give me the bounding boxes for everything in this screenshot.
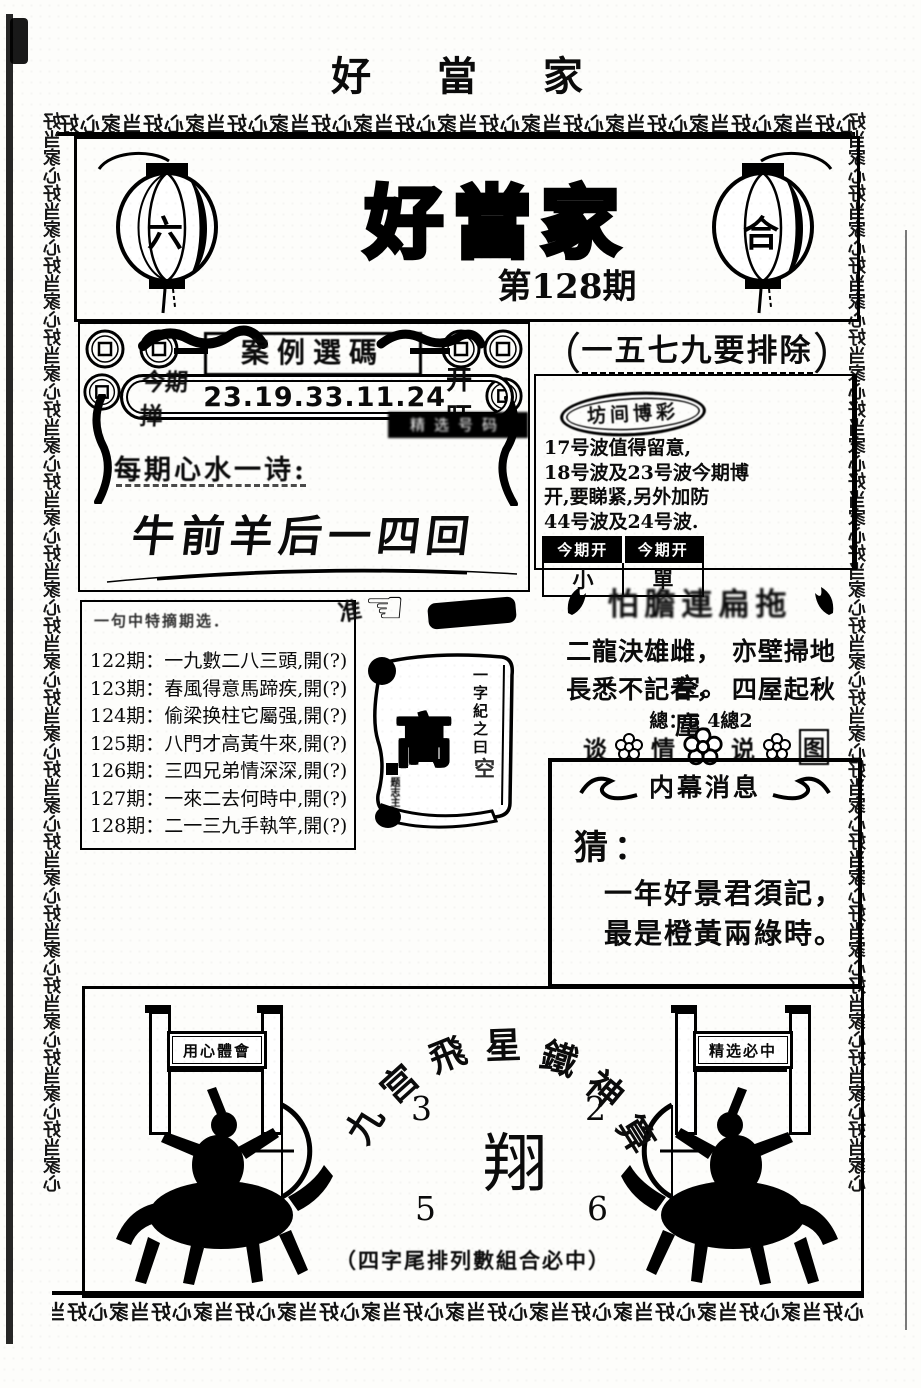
ribbon-curl-icon: [769, 769, 831, 803]
bottom-box: 用心體會 精选必中: [82, 986, 864, 1298]
open-table-header: 今期开: [623, 537, 703, 562]
arc-char: 星: [480, 1016, 526, 1062]
black-tag: 精选号码: [388, 412, 528, 438]
page-title: 好 當 家: [250, 44, 690, 102]
pill-label: 今期掸: [139, 363, 206, 431]
gate-banner-rule: [693, 1069, 787, 1072]
scanned-lottery-sheet: 好 當 家 心好当家心好当家心好当家心好当家心好当家心好当家心好当家心好当家心好…: [0, 0, 921, 1388]
issue-number: 第128期: [457, 259, 677, 308]
exclude-title: 一五七九要排除: [582, 325, 813, 375]
scan-edge-right: [905, 230, 907, 1330]
exclude-box: 坊间博彩 17号波值得留意, 18号波及23号波今期博 开,要睇紧,另外加防 4…: [534, 374, 857, 570]
oval-label: 坊间博彩: [559, 388, 707, 440]
history-item: 125期：八門才高黃牛來,開(?): [90, 731, 347, 759]
insider-box: 内幕消息 猜： 一年好景君須記， 最是橙黃兩綠時。: [548, 758, 862, 988]
history-title: 一句中特摘期选．: [94, 610, 230, 631]
guess-label: 猜：: [574, 820, 654, 869]
case-section: 案例選碼 今期掸 23.19.33.11.24 开旺 精选号码 每期心水一诗: …: [78, 322, 530, 592]
gate-banner-rule: [167, 1069, 261, 1072]
bracket-left: （: [538, 318, 582, 382]
scroll-graphic: 一字紀之曰 高 空 题志主: [352, 645, 534, 835]
scroll-big-char: 高: [396, 697, 452, 778]
arc-char: 飛: [416, 1020, 473, 1077]
num-top-right: 2: [585, 1089, 606, 1128]
arc-char: 鐵: [533, 1025, 588, 1080]
leaf-icon: [564, 583, 598, 619]
num-bottom-right: 6: [587, 1189, 608, 1228]
seal-text: 题志主: [386, 777, 401, 807]
insider-ribbon: 内幕消息: [552, 768, 858, 804]
case-poem: 牛前羊后一四回: [90, 502, 518, 564]
case-title: 案例選碼: [204, 332, 422, 376]
history-item: 122期：一九數二八三頭,開(?): [90, 648, 347, 676]
accuracy-char: 准: [335, 590, 364, 627]
insider-title: 内幕消息: [649, 768, 761, 804]
pill-numbers: 23.19.33.11.24: [203, 382, 446, 413]
seal-square: [386, 763, 398, 775]
lantern-left-char: 六: [147, 205, 183, 257]
open-table-header: 今期开: [543, 537, 623, 562]
num-bottom-left: 5: [415, 1189, 436, 1228]
ribbon-curl-icon: [579, 769, 641, 803]
lantern-right-char: 合: [743, 205, 779, 257]
tip-line: 17号波值得留意,: [544, 436, 749, 461]
tips-banner-text: 怕膽連扁拖: [608, 579, 793, 624]
ribbon-tail-icon: [88, 394, 114, 504]
scroll-vertical-phrase: 一字紀之曰: [470, 667, 491, 757]
poem-label-underline: [116, 484, 306, 487]
num-top-left: 3: [411, 1089, 432, 1128]
pointing-hand-icon: ☜: [364, 580, 405, 634]
history-item: 128期：二一三九手執竿,開(?): [90, 813, 347, 841]
border-bottom-pattern: 心好当家心好当家心好当家心好当家心好当家心好当家心好当家心好当家心好当家心好当家…: [52, 1296, 864, 1324]
lantern-right: 合: [689, 147, 839, 315]
poem-label: 每期心水一诗:: [114, 448, 307, 487]
insider-line2: 最是橙黃兩綠時。: [604, 912, 844, 952]
tip-line: 开,要睇紧,另外加防: [544, 485, 749, 510]
exclude-title-row: （ 一五七九要排除 ）: [536, 328, 858, 372]
history-item: 127期：一來二去何時中,開(?): [90, 786, 347, 814]
scan-blot-topleft: [10, 18, 28, 64]
plaque-bar: [174, 348, 208, 354]
brush-swoosh-icon: [102, 562, 522, 588]
center-char: 翔: [445, 1113, 585, 1205]
tip-line: 18号波及23号波今期博: [544, 461, 749, 486]
history-item: 126期：三四兄弟情深深,開(?): [90, 758, 347, 786]
tip-lines: 17号波值得留意, 18号波及23号波今期博 开,要睇紧,另外加防 44号波及2…: [544, 436, 749, 534]
history-list: 122期：一九數二八三頭,開(?) 123期：春風得意馬蹄疾,開(?) 124期…: [90, 648, 347, 841]
gate-banner-right: 精选必中: [693, 1031, 793, 1069]
bottom-footer: （四字尾排列數組合必中）: [243, 1245, 703, 1275]
border-top-pattern: 心好当家心好当家心好当家心好当家心好当家心好当家心好当家心好当家心好当家心好当家…: [56, 108, 856, 134]
header-box: 六 合 好當家 第128期: [74, 136, 860, 322]
coin-icon: [84, 328, 126, 370]
masthead-title: 好當家: [327, 161, 667, 273]
bracket-right: ）: [813, 318, 857, 382]
scroll-side-char: 空: [474, 753, 495, 783]
scan-edge-left: [6, 14, 13, 1344]
lantern-left: 六: [91, 147, 241, 315]
tips-banner-row: 怕膽連扁拖: [540, 578, 860, 624]
ink-blot: [427, 596, 517, 630]
gate-banner-left: 用心體會: [167, 1031, 267, 1069]
tip-line: 44号波及24号波.: [544, 510, 749, 535]
insider-line1: 一年好景君須記，: [604, 872, 844, 912]
history-box: 一句中特摘期选． 122期：一九數二八三頭,開(?) 123期：春風得意馬蹄疾,…: [80, 600, 356, 850]
history-item: 123期：春風得意馬蹄疾,開(?): [90, 676, 347, 704]
leaf-icon: [803, 583, 837, 619]
history-item: 124期：偷梁换柱它屬强,開(?): [90, 703, 347, 731]
border-left-pattern: 好当家心好当家心好当家心好当家心好当家心好当家心好当家心好当家心好当家心好当家心…: [42, 112, 68, 1308]
